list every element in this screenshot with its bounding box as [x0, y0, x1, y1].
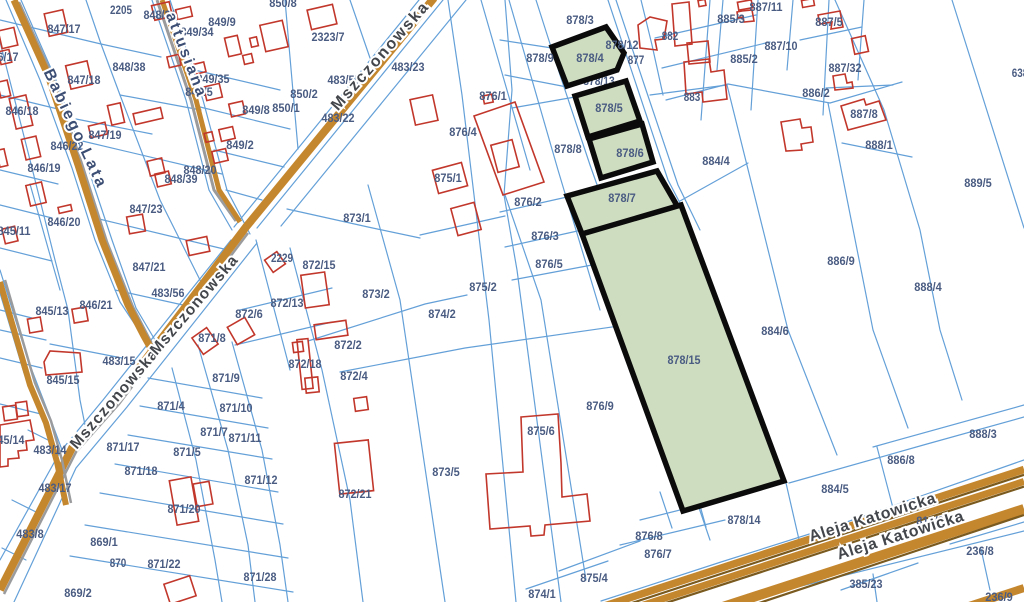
svg-text:847/23: 847/23: [130, 202, 163, 216]
svg-text:878/4: 878/4: [576, 51, 604, 65]
svg-text:483/22: 483/22: [322, 111, 355, 125]
svg-text:873/5: 873/5: [432, 465, 460, 479]
svg-text:889/5: 889/5: [964, 176, 992, 190]
svg-text:887/11: 887/11: [750, 0, 783, 14]
svg-text:872/2: 872/2: [334, 338, 362, 352]
svg-text:850/1: 850/1: [272, 101, 300, 115]
svg-text:878/3: 878/3: [566, 13, 594, 27]
svg-text:878/6: 878/6: [616, 146, 644, 160]
svg-text:849/8: 849/8: [242, 103, 270, 117]
svg-text:483/23: 483/23: [392, 60, 425, 74]
svg-text:878/7: 878/7: [608, 191, 636, 205]
svg-text:885/3: 885/3: [717, 12, 745, 26]
svg-text:885/2: 885/2: [730, 52, 758, 66]
svg-text:878/12: 878/12: [606, 38, 639, 52]
svg-text:846/18: 846/18: [6, 104, 39, 118]
svg-text:850/2: 850/2: [290, 87, 318, 101]
svg-text:871/5: 871/5: [173, 445, 201, 459]
svg-text:850/8: 850/8: [269, 0, 297, 10]
svg-text:874/1: 874/1: [528, 587, 556, 601]
svg-text:871/7: 871/7: [200, 425, 228, 439]
svg-text:236/8: 236/8: [966, 544, 994, 558]
svg-text:872/6: 872/6: [235, 307, 263, 321]
svg-text:871/11: 871/11: [229, 431, 262, 445]
svg-text:2205: 2205: [110, 3, 132, 17]
svg-text:876/1: 876/1: [479, 89, 507, 103]
svg-text:874/2: 874/2: [428, 307, 456, 321]
svg-text:878/14: 878/14: [728, 513, 761, 527]
svg-text:875/4: 875/4: [580, 571, 608, 585]
svg-text:847/19: 847/19: [89, 128, 122, 142]
svg-text:871/12: 871/12: [245, 473, 278, 487]
svg-text:871/17: 871/17: [107, 440, 140, 454]
svg-text:887/5: 887/5: [815, 15, 843, 29]
svg-text:845/11: 845/11: [0, 224, 31, 238]
svg-text:847/17: 847/17: [48, 22, 81, 36]
svg-text:877: 877: [628, 53, 645, 67]
svg-text:876/9: 876/9: [586, 399, 614, 413]
svg-text:845/14: 845/14: [0, 433, 25, 447]
svg-text:873/2: 873/2: [362, 287, 390, 301]
svg-text:888/3: 888/3: [969, 427, 997, 441]
svg-text:876/5: 876/5: [535, 257, 563, 271]
svg-text:886/8: 886/8: [887, 453, 915, 467]
svg-text:871/8: 871/8: [198, 331, 226, 345]
svg-text:849/2: 849/2: [226, 138, 254, 152]
svg-text:845/15: 845/15: [47, 373, 80, 387]
svg-text:878/9: 878/9: [526, 51, 554, 65]
svg-text:873/1: 873/1: [343, 211, 371, 225]
svg-text:871/9: 871/9: [212, 371, 240, 385]
svg-text:888/1: 888/1: [865, 138, 893, 152]
svg-text:887/10: 887/10: [765, 39, 798, 53]
svg-text:876/4: 876/4: [449, 125, 477, 139]
svg-text:872/18: 872/18: [289, 357, 322, 371]
svg-text:638: 638: [1012, 66, 1024, 80]
svg-text:876/7: 876/7: [644, 547, 672, 561]
svg-text:872/4: 872/4: [340, 369, 368, 383]
svg-text:483/14: 483/14: [34, 443, 67, 457]
svg-text:845/13: 845/13: [36, 304, 69, 318]
svg-text:869/1: 869/1: [90, 535, 118, 549]
svg-text:483/56: 483/56: [152, 286, 185, 300]
svg-text:871/4: 871/4: [157, 399, 185, 413]
svg-text:871/28: 871/28: [244, 570, 277, 584]
svg-text:882: 882: [662, 29, 679, 43]
svg-text:2229: 2229: [271, 251, 293, 265]
svg-text:871/10: 871/10: [220, 401, 253, 415]
svg-text:872/15: 872/15: [303, 258, 336, 272]
svg-text:875/2: 875/2: [469, 280, 497, 294]
svg-text:876/2: 876/2: [514, 195, 542, 209]
svg-text:869/2: 869/2: [64, 586, 92, 600]
svg-text:848/20: 848/20: [184, 163, 217, 177]
svg-text:887/8: 887/8: [850, 107, 878, 121]
svg-text:847/21: 847/21: [133, 260, 166, 274]
svg-text:884/4: 884/4: [702, 154, 730, 168]
svg-text:236/9: 236/9: [985, 590, 1013, 602]
svg-text:2323/7: 2323/7: [312, 30, 345, 44]
svg-text:875/1: 875/1: [434, 171, 462, 185]
svg-text:846/19: 846/19: [28, 161, 61, 175]
svg-text:871/22: 871/22: [148, 557, 181, 571]
svg-text:846/20: 846/20: [48, 215, 81, 229]
svg-text:848/38: 848/38: [113, 60, 146, 74]
svg-text:886/9: 886/9: [827, 254, 855, 268]
svg-text:876/3: 876/3: [531, 229, 559, 243]
svg-text:846/21: 846/21: [80, 298, 113, 312]
svg-text:888/4: 888/4: [914, 280, 942, 294]
svg-text:878/8: 878/8: [554, 142, 582, 156]
svg-text:875/6: 875/6: [527, 424, 555, 438]
svg-text:876/8: 876/8: [635, 529, 663, 543]
svg-text:847/18: 847/18: [68, 73, 101, 87]
svg-text:385/23: 385/23: [850, 577, 883, 591]
svg-text:878/5: 878/5: [595, 101, 623, 115]
svg-text:872/13: 872/13: [271, 296, 304, 310]
svg-text:884/6: 884/6: [761, 324, 789, 338]
svg-text:483/8: 483/8: [16, 527, 44, 541]
svg-text:870: 870: [110, 556, 127, 570]
svg-text:878/15: 878/15: [668, 353, 701, 367]
svg-text:871/20: 871/20: [168, 502, 201, 516]
svg-text:886/2: 886/2: [802, 86, 830, 100]
svg-text:846/17: 846/17: [0, 50, 19, 64]
svg-text:872/21: 872/21: [339, 487, 372, 501]
svg-text:883: 883: [684, 90, 701, 104]
svg-text:871/18: 871/18: [125, 464, 158, 478]
svg-text:887/32: 887/32: [829, 61, 862, 75]
svg-text:483/17: 483/17: [39, 481, 72, 495]
svg-text:884/5: 884/5: [821, 482, 849, 496]
